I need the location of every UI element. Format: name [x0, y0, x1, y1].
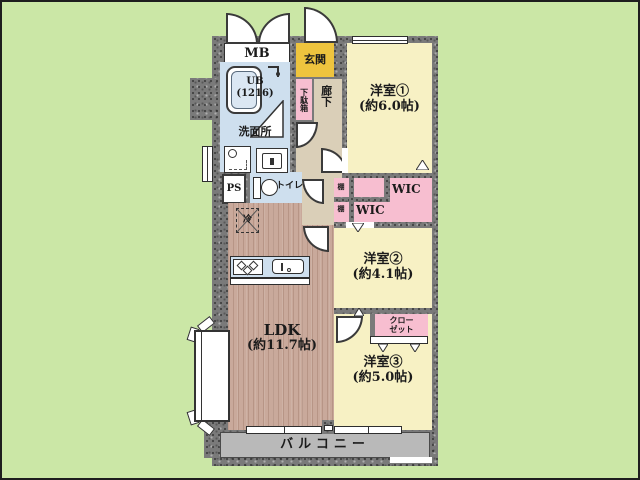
shoe-box-label: 下駄箱: [299, 88, 308, 112]
closet-label-line2: ゼット: [390, 325, 414, 334]
meter-box-door-right: [258, 13, 290, 44]
entrance-door-arc: [304, 7, 338, 43]
washroom-label: 洗面所: [222, 126, 288, 139]
floor-plan-canvas: MB 玄関 洋室① (約6.0帖) UB (1216) 下駄箱 廊下 洗面所 P…: [0, 0, 640, 480]
balcony: バルコニー: [220, 432, 430, 458]
toilet-tank-icon: [253, 177, 261, 199]
balcony-drain-gap: [390, 457, 432, 463]
western-room-3-name: 洋室③: [334, 356, 432, 371]
sink-drain-dot: [287, 268, 291, 272]
meter-box-label: MB: [244, 47, 269, 62]
window-balcony-stub: [324, 425, 333, 431]
vent-mark-western-1: [416, 160, 429, 170]
sink-faucet: [281, 263, 283, 271]
hallway-label: 廊下: [319, 85, 332, 107]
shelf-upper-label: 棚: [337, 183, 345, 190]
refrigerator-label: 冷: [237, 209, 258, 232]
western-room-1-size: (約6.0帖): [347, 100, 432, 115]
door-mark-western-2: [352, 223, 364, 232]
washer-pan-icon: [224, 146, 251, 173]
toilet-label: トイレ: [276, 181, 303, 191]
vanity-sink-icon: [256, 148, 288, 173]
door-mark-western-3: [354, 308, 364, 316]
western-room-3-label: 洋室③ (約5.0帖): [334, 356, 432, 386]
western-room-2-name: 洋室②: [363, 253, 402, 268]
window-western-3-balcony: [334, 426, 402, 434]
window-western-1-top: [352, 36, 408, 44]
wic-upper-label: WIC: [392, 183, 421, 197]
western-room-1-name: 洋室①: [347, 85, 432, 100]
window-washroom-left: [202, 146, 213, 182]
washer-dashed-mark: [229, 160, 247, 170]
room-entrance: 玄関: [296, 43, 334, 77]
wall-pillar-top-left: [190, 78, 222, 120]
refrigerator-space: 冷: [236, 208, 259, 233]
vanity-faucet-dot: [270, 158, 274, 165]
room-pipe-space: PS: [222, 174, 246, 204]
pipe-space-label: PS: [227, 183, 242, 195]
meter-box-door-left: [226, 13, 258, 44]
kitchen-counter-edge: [230, 278, 310, 285]
ldk-size: (約11.7帖): [226, 339, 338, 354]
wic-lower-label: WIC: [356, 204, 385, 218]
room-ldk-main: [228, 203, 302, 430]
room-closet: クロー ゼット: [370, 314, 428, 336]
room-shoe-box: 下駄箱: [296, 79, 312, 120]
western-room-1-label: 洋室① (約6.0帖): [347, 85, 432, 115]
shelf-lower-label: 棚: [337, 205, 345, 212]
closet-door-mark-left: [378, 344, 388, 352]
balcony-label: バルコニー: [280, 438, 370, 453]
stove-icon: [233, 259, 263, 275]
bay-window: [194, 330, 230, 422]
entrance-label: 玄関: [304, 54, 326, 67]
western-room-3-size: (約5.0帖): [334, 371, 432, 386]
wic-divider-horizontal: [354, 197, 390, 202]
washer-drain-circle: [228, 149, 237, 158]
unit-bath-size: (1216): [222, 88, 288, 100]
wic-shelf-cell-wall: [334, 197, 349, 202]
closet-folding-door: [370, 336, 428, 344]
ldk-name: LDK: [226, 322, 338, 339]
ldk-label: LDK (約11.7帖): [226, 322, 338, 354]
unit-bath-name: UB: [222, 76, 288, 88]
window-ldk-balcony: [246, 426, 322, 434]
room-western-2: 洋室② (約4.1帖): [334, 228, 432, 308]
western-room-2-size: (約4.1帖): [353, 268, 414, 283]
unit-bath-label: UB (1216): [222, 76, 288, 99]
kitchen-sink-icon: [272, 259, 304, 274]
closet-door-mark-right: [410, 344, 420, 352]
western-room-1-door-gap: [342, 148, 348, 173]
